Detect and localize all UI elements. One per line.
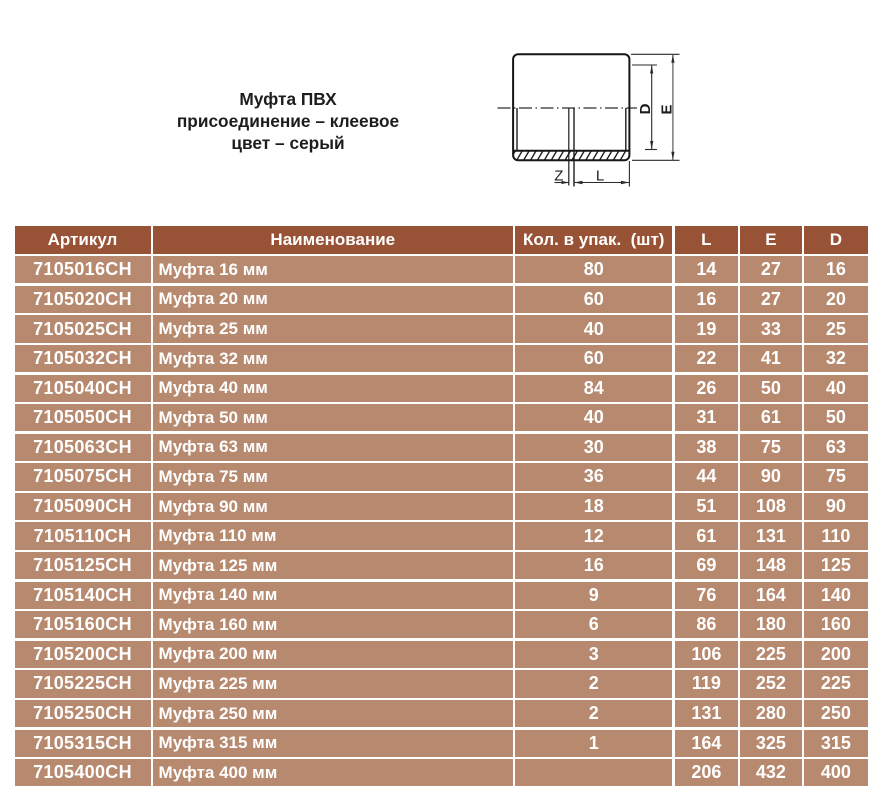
svg-text:L: L [596, 168, 604, 185]
svg-text:D: D [637, 103, 654, 114]
svg-text:Z: Z [554, 168, 563, 185]
svg-text:E: E [658, 104, 675, 114]
